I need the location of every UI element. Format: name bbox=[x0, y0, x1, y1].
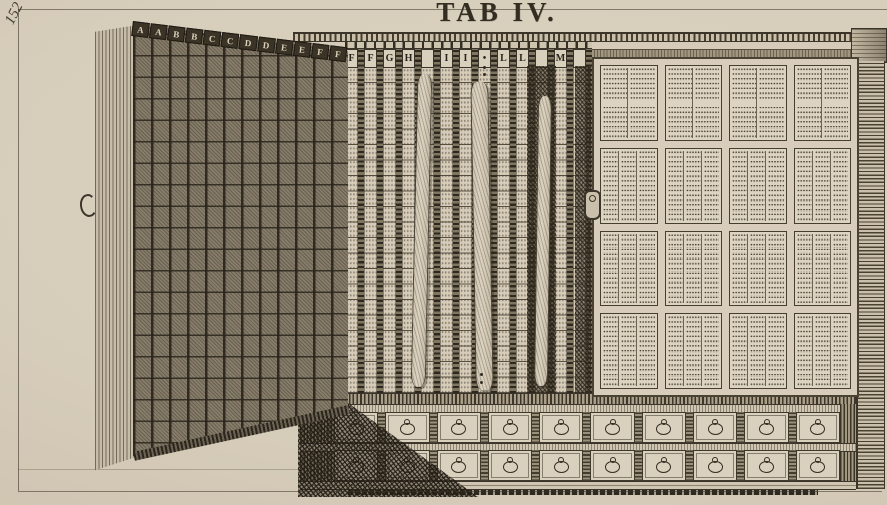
pigeonhole-column: G bbox=[383, 49, 402, 393]
drawer-row-top bbox=[334, 412, 840, 443]
catalog-text-column bbox=[603, 316, 619, 386]
middle-top-band bbox=[345, 42, 592, 49]
ring-pull-icon bbox=[656, 423, 671, 435]
catalog-text-column bbox=[686, 234, 702, 304]
catalog-text-column bbox=[732, 68, 757, 138]
ring-pull-icon bbox=[503, 423, 518, 435]
column-letter: L bbox=[497, 49, 510, 68]
door-letter: B bbox=[167, 25, 186, 42]
catalog-panel bbox=[592, 57, 859, 397]
drawer bbox=[744, 450, 788, 481]
catalog-text-column bbox=[833, 316, 848, 386]
catalog-text-column bbox=[621, 234, 637, 304]
catalog-text-column bbox=[621, 316, 637, 386]
catalog-grid bbox=[600, 65, 851, 389]
catalog-text-column bbox=[797, 316, 813, 386]
catalog-text-column bbox=[732, 234, 748, 304]
catalog-text-column bbox=[704, 316, 719, 386]
column-cells bbox=[440, 68, 453, 393]
catalog-text-column bbox=[695, 68, 719, 138]
catalog-text-column bbox=[704, 234, 719, 304]
ring-pull-icon bbox=[708, 423, 723, 435]
catalog-plaque bbox=[729, 231, 787, 307]
catalog-text-column bbox=[668, 316, 684, 386]
page-number: 152 bbox=[2, 0, 27, 28]
dot-mark bbox=[480, 373, 483, 376]
pigeonhole-cell-stack: I bbox=[440, 49, 453, 393]
drawer bbox=[693, 450, 737, 481]
catalog-text-column bbox=[704, 151, 719, 221]
catalog-text-column bbox=[603, 68, 628, 138]
catalog-plaque bbox=[665, 65, 723, 141]
catalog-text-column bbox=[639, 234, 654, 304]
catalog-plaque bbox=[729, 148, 787, 224]
door-letter: B bbox=[185, 28, 204, 45]
plate-title: TAB IV. bbox=[402, 0, 592, 28]
keyhole-ring bbox=[589, 195, 596, 202]
pigeonhole-column: L bbox=[497, 49, 516, 393]
column-letter bbox=[421, 49, 434, 68]
catalog-text-column bbox=[668, 151, 684, 221]
door-letter: F bbox=[329, 45, 348, 62]
door-letter: A bbox=[131, 21, 150, 38]
catalog-plaque bbox=[600, 148, 658, 224]
catalog-plaque bbox=[794, 313, 852, 389]
catalog-text-column bbox=[668, 68, 693, 138]
catalog-text-column bbox=[815, 151, 831, 221]
catalog-text-column bbox=[815, 234, 831, 304]
catalog-text-column bbox=[732, 151, 748, 221]
plate-border-left bbox=[18, 9, 19, 491]
door-letter: E bbox=[293, 41, 312, 58]
drawer bbox=[437, 412, 481, 443]
catalog-text-column bbox=[833, 151, 848, 221]
catalog-text-column bbox=[686, 151, 702, 221]
pigeonhole-column: M bbox=[554, 49, 573, 393]
drawer bbox=[642, 412, 686, 443]
door-letter: C bbox=[221, 32, 240, 49]
dot-mark bbox=[483, 73, 486, 76]
catalog-plaque bbox=[600, 231, 658, 307]
plate-border-bottom bbox=[18, 491, 882, 492]
column-letter: F bbox=[364, 49, 377, 68]
ring-pull-icon bbox=[759, 461, 774, 473]
catalog-plaque bbox=[794, 231, 852, 307]
shadowed-column bbox=[575, 66, 591, 393]
drawer bbox=[539, 450, 583, 481]
catalog-text-column bbox=[815, 316, 831, 386]
drawer bbox=[539, 412, 583, 443]
ring-pull-icon bbox=[810, 461, 825, 473]
drawer bbox=[590, 412, 634, 443]
catalog-text-column bbox=[621, 151, 637, 221]
catalog-plaque bbox=[600, 313, 658, 389]
dot-mark bbox=[480, 381, 483, 384]
catalog-plaque bbox=[665, 148, 723, 224]
column-cells bbox=[364, 68, 377, 393]
ring-pull-icon bbox=[400, 423, 415, 435]
door-letter: A bbox=[149, 23, 168, 40]
drawer bbox=[796, 450, 840, 481]
column-letter: H bbox=[402, 49, 415, 68]
catalog-plaque bbox=[600, 65, 658, 141]
drawer bbox=[796, 412, 840, 443]
drawer bbox=[590, 450, 634, 481]
drawer bbox=[693, 412, 737, 443]
catalog-plaque bbox=[665, 231, 723, 307]
pigeonhole-cell-stack: L bbox=[497, 49, 510, 393]
pigeonhole-column: F bbox=[364, 49, 383, 393]
catalog-text-column bbox=[768, 316, 783, 386]
catalog-plaque bbox=[729, 313, 787, 389]
drawer bbox=[642, 450, 686, 481]
ring-pull-icon bbox=[451, 423, 466, 435]
catalog-plaque bbox=[665, 313, 723, 389]
catalog-text-column bbox=[630, 68, 654, 138]
catalog-plaque bbox=[729, 65, 787, 141]
column-letter: I bbox=[459, 49, 472, 68]
ring-pull-icon bbox=[605, 461, 620, 473]
door-letter: C bbox=[203, 30, 222, 47]
pigeonhole-cell-stack: F bbox=[364, 49, 377, 393]
catalog-text-column bbox=[750, 234, 766, 304]
catalog-plaque bbox=[794, 65, 852, 141]
door-letter: F bbox=[311, 43, 330, 60]
ring-pull-icon bbox=[605, 423, 620, 435]
keyhole-icon bbox=[584, 190, 601, 220]
catalog-text-column bbox=[797, 68, 822, 138]
floor-line bbox=[18, 469, 300, 470]
catalog-text-column bbox=[833, 234, 848, 304]
dot-mark bbox=[483, 66, 486, 69]
ring-pull-icon bbox=[656, 461, 671, 473]
catalog-text-column bbox=[639, 151, 654, 221]
ring-pull-icon bbox=[554, 461, 569, 473]
door-letter: E bbox=[275, 39, 294, 56]
column-letter: I bbox=[440, 49, 453, 68]
catalog-text-column bbox=[750, 316, 766, 386]
ring-pull-icon bbox=[503, 461, 518, 473]
pigeonhole-column: I bbox=[440, 49, 459, 393]
catalog-text-column bbox=[639, 316, 654, 386]
cabinet-right-side bbox=[856, 61, 885, 489]
catalog-plaque bbox=[794, 148, 852, 224]
ring-pull-icon bbox=[708, 461, 723, 473]
column-letter: G bbox=[383, 49, 396, 68]
column-cells bbox=[383, 68, 396, 393]
catalog-text-column bbox=[603, 151, 619, 221]
ring-pull-icon bbox=[810, 423, 825, 435]
catalog-text-column bbox=[768, 151, 783, 221]
drawer bbox=[488, 412, 532, 443]
door-inner-face bbox=[133, 20, 348, 465]
ring-pull-icon bbox=[554, 423, 569, 435]
drawer bbox=[744, 412, 788, 443]
column-cells bbox=[497, 68, 510, 393]
drawer bbox=[488, 450, 532, 481]
catalog-text-column bbox=[768, 234, 783, 304]
cornice-dentils bbox=[293, 34, 884, 42]
door-edge bbox=[95, 25, 138, 472]
door-letter: D bbox=[239, 34, 258, 51]
pigeonhole-cell-stack: G bbox=[383, 49, 396, 393]
catalog-text-column bbox=[824, 68, 848, 138]
ring-pull-icon bbox=[759, 423, 774, 435]
catalog-text-column bbox=[750, 151, 766, 221]
engraved-plate: FFGHII•LLM AABBCCDDEEFF TAB IV. 152 bbox=[0, 0, 887, 505]
ring-pull-icon bbox=[451, 461, 466, 473]
catalog-text-column bbox=[732, 316, 748, 386]
catalog-text-column bbox=[797, 151, 813, 221]
catalog-text-column bbox=[603, 234, 619, 304]
door-letter: D bbox=[257, 36, 276, 53]
catalog-text-column bbox=[668, 234, 684, 304]
catalog-text-column bbox=[759, 68, 783, 138]
catalog-text-column bbox=[686, 316, 702, 386]
catalog-text-column bbox=[797, 234, 813, 304]
